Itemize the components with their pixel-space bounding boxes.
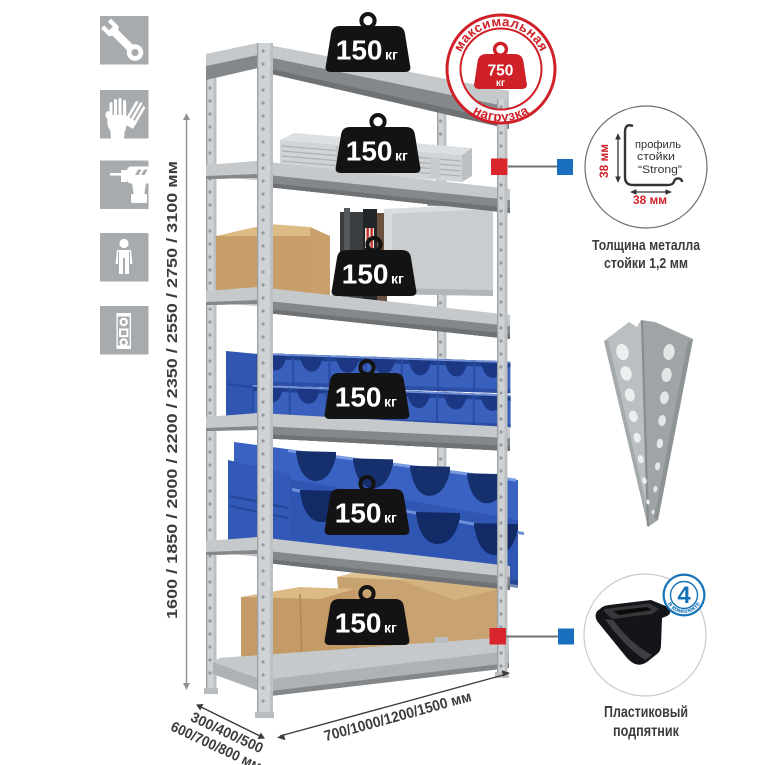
svg-text:Толщина металла: Толщина металла: [592, 237, 701, 254]
svg-text:стойки 1,2 мм: стойки 1,2 мм: [604, 255, 688, 272]
svg-text:1600 / 1850 / 2000 / 2200 / 23: 1600 / 1850 / 2000 / 2200 / 2350 / 2550 …: [165, 161, 181, 619]
svg-text:кг: кг: [384, 509, 397, 525]
svg-text:4: 4: [677, 582, 691, 609]
svg-text:кг: кг: [384, 619, 397, 635]
svg-text:750: 750: [488, 63, 514, 80]
svg-text:150: 150: [335, 607, 382, 638]
svg-text:кг: кг: [391, 270, 404, 286]
svg-text:“Strong”: “Strong”: [638, 164, 682, 176]
svg-text:Пластиковый: Пластиковый: [604, 704, 688, 721]
svg-text:кг: кг: [496, 78, 505, 89]
svg-text:стойки: стойки: [637, 151, 675, 163]
svg-text:кг: кг: [395, 147, 408, 163]
svg-text:150: 150: [335, 381, 382, 412]
svg-text:38 мм: 38 мм: [599, 144, 611, 178]
svg-text:150: 150: [336, 34, 383, 65]
svg-text:38 мм: 38 мм: [633, 195, 667, 207]
svg-text:150: 150: [335, 497, 382, 528]
svg-text:кг: кг: [385, 46, 398, 62]
svg-text:подпятник: подпятник: [613, 723, 680, 740]
svg-text:кг: кг: [384, 393, 397, 409]
svg-text:профиль: профиль: [635, 139, 681, 151]
svg-text:150: 150: [346, 135, 393, 166]
svg-text:150: 150: [342, 258, 389, 289]
